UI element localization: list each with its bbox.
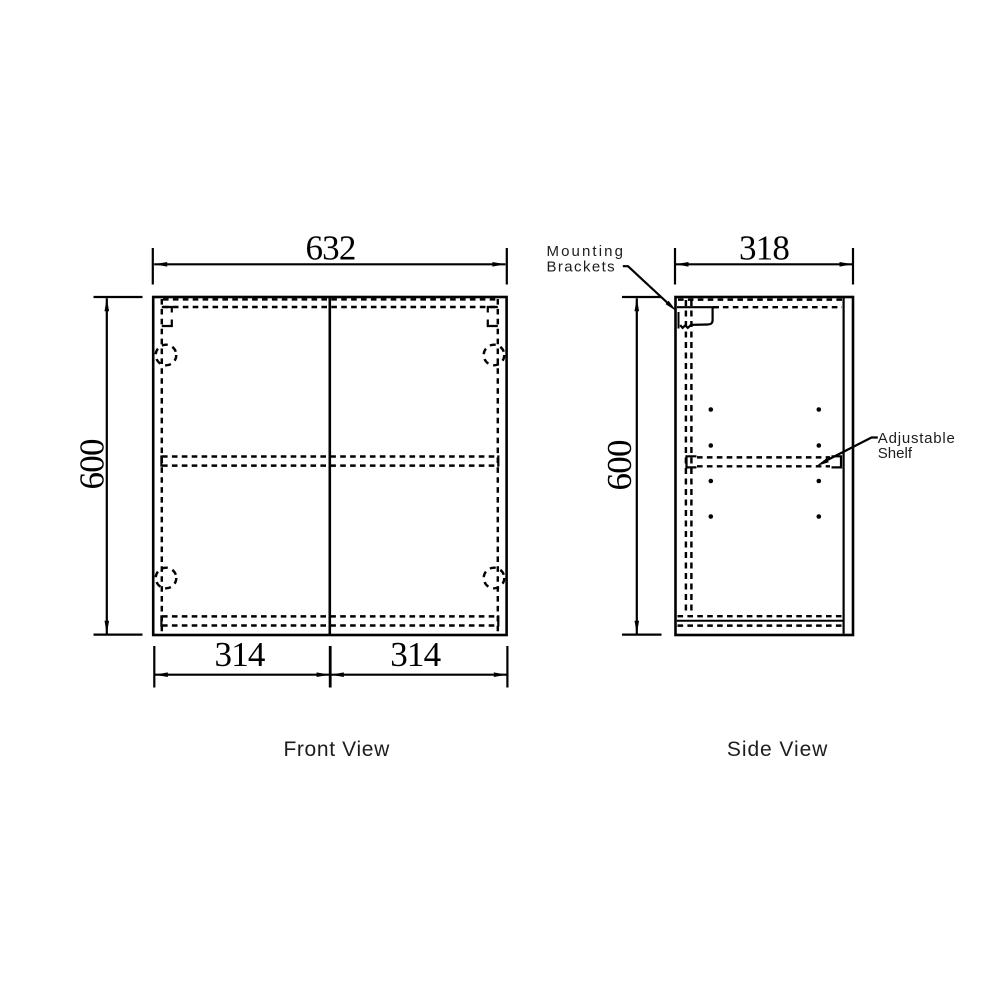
svg-text:Front View: Front View <box>283 738 390 761</box>
svg-text:314: 314 <box>215 635 265 674</box>
svg-text:Side View: Side View <box>727 738 828 761</box>
svg-text:Shelf: Shelf <box>878 445 913 462</box>
svg-text:600: 600 <box>73 439 112 489</box>
svg-text:600: 600 <box>600 440 639 490</box>
svg-text:318: 318 <box>739 228 789 267</box>
svg-text:632: 632 <box>305 228 355 267</box>
svg-text:Brackets: Brackets <box>547 258 617 275</box>
svg-text:Mounting: Mounting <box>547 243 626 260</box>
svg-text:314: 314 <box>390 635 440 674</box>
